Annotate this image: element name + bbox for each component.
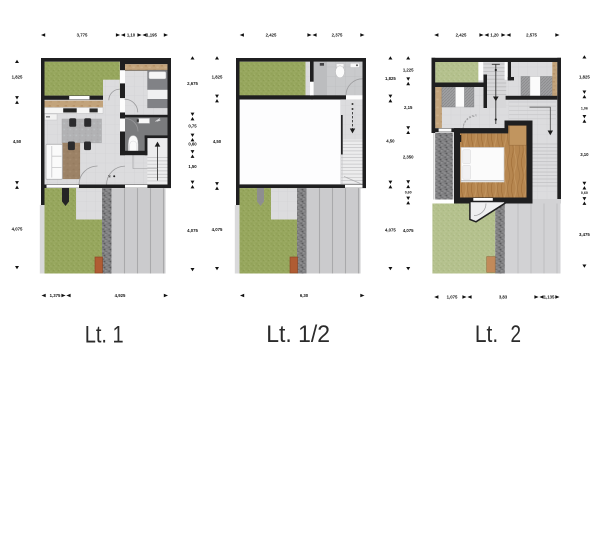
svg-text:1,50: 1,50 [188,164,197,169]
svg-text:1,825: 1,825 [212,75,223,80]
svg-text:2: 2 [511,322,522,348]
svg-text:1,135: 1,135 [544,295,555,300]
svg-text:2,375: 2,375 [332,33,343,38]
svg-text:1,825: 1,825 [579,74,590,79]
svg-text:0,60: 0,60 [581,191,588,195]
svg-text:2,575: 2,575 [526,33,537,38]
svg-text:1,10: 1,10 [127,33,136,38]
svg-text:1,195: 1,195 [146,33,157,38]
svg-text:2,350: 2,350 [403,154,414,159]
svg-text:0,60: 0,60 [405,191,412,195]
svg-text:1,075: 1,075 [447,295,458,300]
svg-text:6,30: 6,30 [300,293,309,298]
svg-text:Lt. 1: Lt. 1 [85,323,124,349]
svg-text:1,825: 1,825 [12,75,23,80]
svg-text:3,475: 3,475 [579,232,590,237]
svg-text:3,775: 3,775 [77,33,88,38]
svg-text:1,825: 1,825 [385,76,396,81]
svg-text:4,075: 4,075 [187,228,198,233]
svg-text:4,075: 4,075 [12,227,23,232]
svg-text:2,15: 2,15 [404,105,413,110]
svg-text:1,20: 1,20 [490,33,499,38]
svg-text:0,60: 0,60 [188,142,197,147]
svg-text:Lt.: Lt. [475,322,498,348]
svg-text:4,50: 4,50 [13,139,22,144]
svg-text:2,425: 2,425 [266,33,277,38]
svg-text:3,83: 3,83 [499,295,508,300]
svg-text:4,50: 4,50 [386,139,395,144]
svg-text:0,75: 0,75 [188,123,197,128]
svg-text:4,925: 4,925 [115,293,126,298]
svg-text:4,075: 4,075 [403,228,414,233]
svg-text:1,06: 1,06 [581,107,588,111]
svg-text:3,10: 3,10 [580,152,589,157]
svg-text:4,075: 4,075 [385,228,396,233]
svg-text:1,225: 1,225 [403,67,414,72]
svg-text:2,425: 2,425 [456,33,467,38]
svg-text:4,075: 4,075 [212,227,223,232]
svg-text:4,50: 4,50 [213,139,222,144]
svg-text:1,375: 1,375 [50,293,61,298]
svg-text:2,675: 2,675 [187,81,198,86]
svg-text:Lt. 1/2: Lt. 1/2 [266,322,330,348]
